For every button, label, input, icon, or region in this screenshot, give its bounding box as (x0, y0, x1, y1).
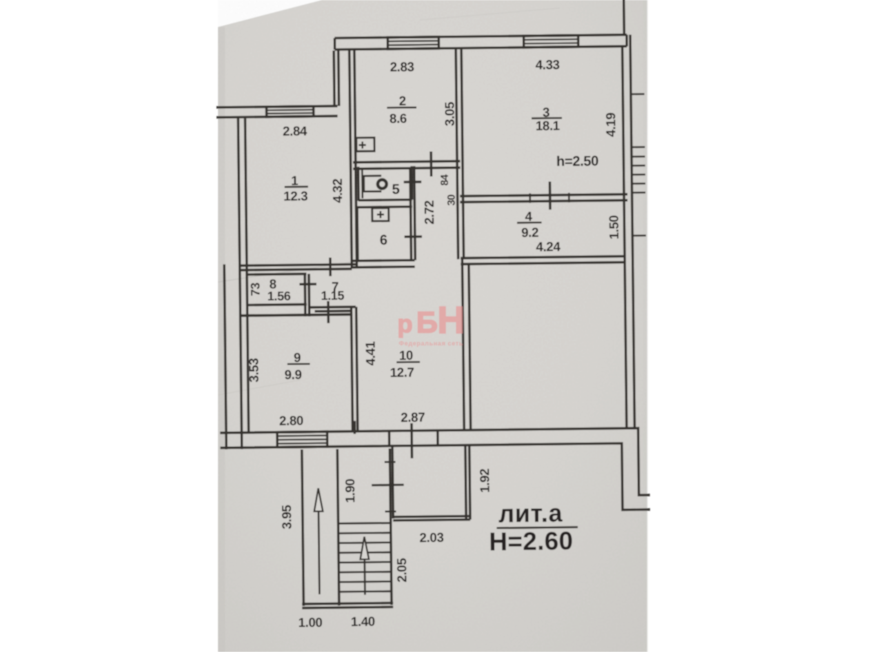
svg-text:Н: Н (437, 300, 464, 342)
svg-text:1.50: 1.50 (606, 215, 621, 239)
svg-text:1: 1 (291, 173, 298, 188)
svg-text:30: 30 (446, 194, 458, 206)
svg-text:4: 4 (525, 209, 533, 224)
svg-text:1.56: 1.56 (267, 289, 291, 303)
svg-text:2.05: 2.05 (394, 558, 409, 582)
svg-text:4.19: 4.19 (603, 113, 618, 137)
svg-text:1.15: 1.15 (321, 289, 345, 303)
svg-text:9.2: 9.2 (521, 225, 538, 240)
svg-text:4.32: 4.32 (330, 179, 345, 203)
svg-text:лит.а: лит.а (498, 499, 563, 528)
svg-text:1.00: 1.00 (298, 615, 322, 630)
svg-text:73: 73 (248, 282, 262, 296)
svg-text:9.9: 9.9 (284, 367, 301, 382)
svg-text:9: 9 (294, 350, 301, 365)
svg-text:1.90: 1.90 (342, 479, 357, 503)
svg-text:4.33: 4.33 (535, 57, 559, 72)
svg-text:Б: Б (416, 307, 438, 340)
svg-text:3.05: 3.05 (442, 102, 457, 126)
svg-text:Федеральная сеть: Федеральная сеть (399, 341, 464, 348)
svg-text:3.95: 3.95 (279, 505, 294, 529)
svg-text:12.7: 12.7 (390, 365, 414, 380)
svg-text:2.83: 2.83 (390, 59, 414, 74)
svg-text:2.72: 2.72 (422, 200, 437, 224)
svg-text:12.3: 12.3 (283, 188, 307, 203)
svg-text:2.03: 2.03 (419, 530, 443, 545)
svg-text:2.87: 2.87 (401, 410, 425, 425)
svg-text:3.53: 3.53 (246, 358, 261, 382)
svg-text:10: 10 (399, 348, 413, 363)
svg-text:4.41: 4.41 (363, 341, 378, 365)
svg-text:18.1: 18.1 (535, 118, 559, 133)
svg-text:6: 6 (380, 231, 388, 247)
svg-text:р: р (397, 311, 412, 339)
svg-text:5: 5 (392, 181, 400, 197)
svg-text:84: 84 (439, 174, 451, 186)
svg-text:4.24: 4.24 (536, 239, 561, 254)
svg-text:1.92: 1.92 (477, 469, 492, 493)
svg-text:2: 2 (399, 93, 406, 108)
svg-text:1.40: 1.40 (351, 614, 375, 629)
svg-text:Н=2.60: Н=2.60 (489, 527, 573, 556)
svg-text:h=2.50: h=2.50 (556, 153, 599, 169)
svg-text:8.6: 8.6 (389, 111, 406, 126)
svg-text:2.84: 2.84 (283, 123, 308, 138)
svg-text:2.80: 2.80 (279, 413, 303, 428)
